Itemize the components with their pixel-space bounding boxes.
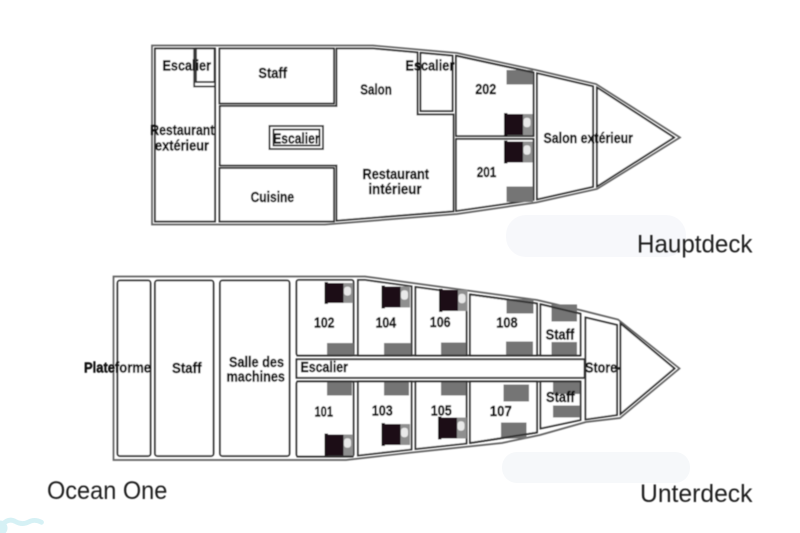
svg-text:Ocean One: Ocean One <box>47 477 167 505</box>
svg-text:Restaurant: Restaurant <box>150 123 214 139</box>
svg-text:Staff: Staff <box>546 327 575 343</box>
svg-text:106: 106 <box>430 315 451 331</box>
svg-text:intérieur: intérieur <box>369 182 422 198</box>
svg-text:Escalier: Escalier <box>405 59 454 75</box>
svg-text:Escalier: Escalier <box>163 59 212 75</box>
svg-text:201: 201 <box>477 165 497 181</box>
svg-text:101: 101 <box>315 404 334 420</box>
svg-text:105: 105 <box>431 404 452 420</box>
svg-text:Cuisine: Cuisine <box>251 190 295 206</box>
svg-text:Escalier: Escalier <box>273 132 320 148</box>
svg-text:Salon: Salon <box>360 83 392 99</box>
svg-text:104: 104 <box>376 315 397 331</box>
svg-text:Hauptdeck: Hauptdeck <box>637 231 753 259</box>
svg-text:108: 108 <box>496 316 517 332</box>
svg-text:103: 103 <box>372 404 393 420</box>
svg-text:Restaurant: Restaurant <box>363 167 430 183</box>
svg-text:Staff: Staff <box>546 390 575 406</box>
svg-text:Staff: Staff <box>172 361 202 377</box>
svg-text:Unterdeck: Unterdeck <box>640 480 753 508</box>
svg-text:Escalier: Escalier <box>301 360 349 376</box>
svg-text:Plateforme: Plateforme <box>84 361 151 377</box>
svg-text:Staff: Staff <box>258 66 287 82</box>
svg-text:extérieur: extérieur <box>155 138 209 154</box>
svg-text:202: 202 <box>475 82 496 98</box>
svg-text:machines: machines <box>227 370 286 386</box>
svg-text:107: 107 <box>490 404 512 420</box>
svg-text:Store: Store <box>585 360 617 376</box>
svg-text:102: 102 <box>314 315 335 331</box>
svg-text:Salon extérieur: Salon extérieur <box>544 131 634 147</box>
